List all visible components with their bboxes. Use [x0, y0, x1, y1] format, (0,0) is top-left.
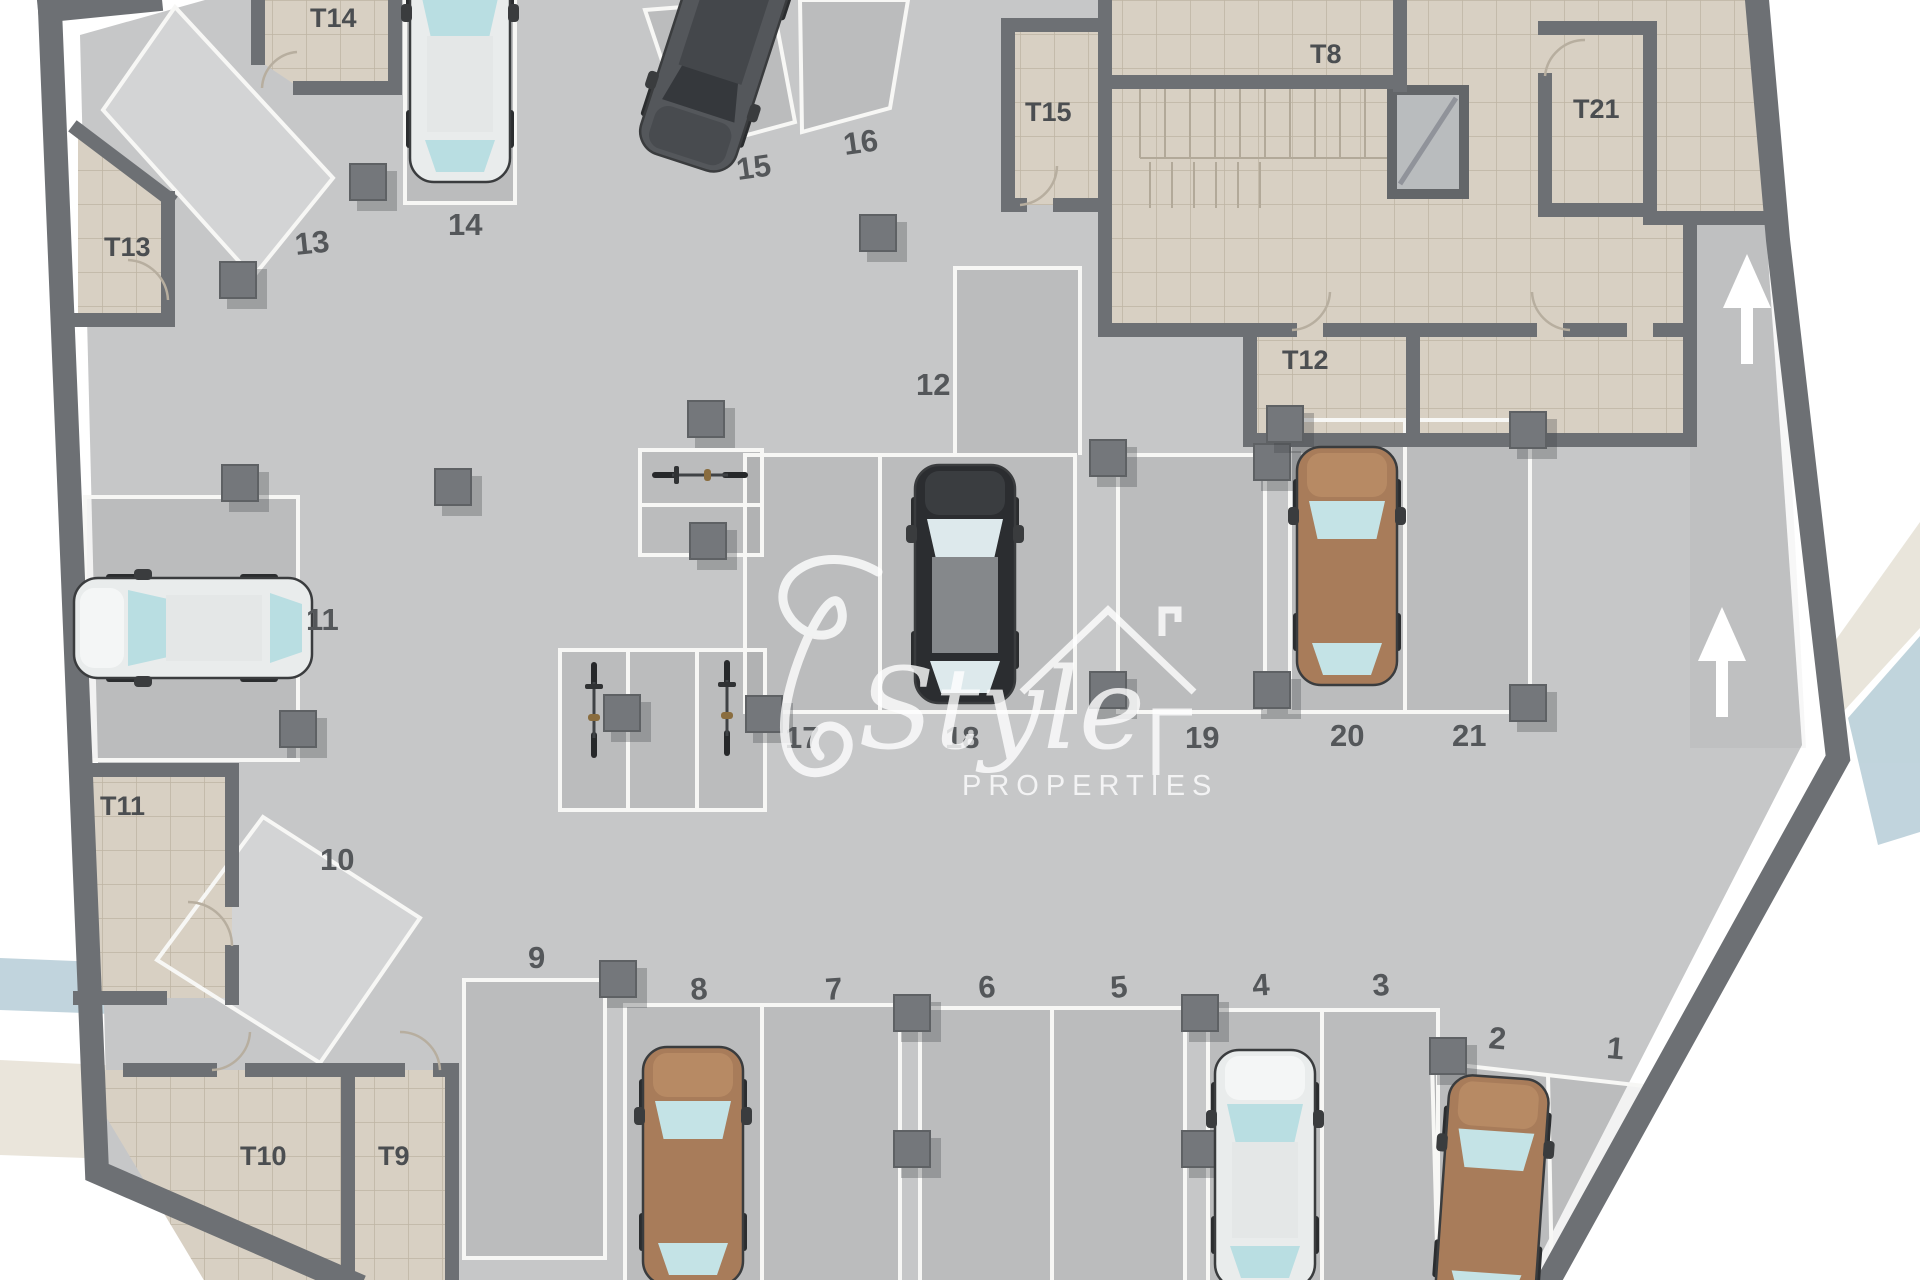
room-label-t12: T12 — [1282, 345, 1329, 375]
space-label-15: 15 — [734, 147, 773, 186]
space-label-10: 10 — [320, 842, 354, 877]
space-label-8: 8 — [689, 971, 709, 1007]
car-space-8 — [634, 1047, 752, 1280]
space-label-3: 3 — [1371, 967, 1391, 1003]
car-space-14 — [401, 0, 519, 182]
room-label-t8: T8 — [1310, 39, 1342, 69]
space-label-7: 7 — [824, 971, 844, 1007]
room-label-t13: T13 — [104, 232, 151, 262]
room-label-t9: T9 — [378, 1141, 410, 1171]
space-label-21: 21 — [1452, 718, 1486, 753]
room-label-t15: T15 — [1025, 97, 1072, 127]
space-label-16: 16 — [841, 122, 880, 161]
space-label-14: 14 — [448, 207, 483, 242]
car-space-11 — [74, 569, 312, 687]
space-label-5: 5 — [1109, 969, 1129, 1005]
watermark-caption: PROPERTIES — [962, 770, 1218, 802]
watermark-script: Style — [858, 645, 1145, 775]
room-label-t14: T14 — [310, 3, 357, 33]
floor-plan-page: 13 14 15 16 12 11 17 18 19 20 21 10 9 8 … — [0, 0, 1920, 1280]
car-space-4 — [1206, 1050, 1324, 1280]
room-label-t11: T11 — [100, 791, 145, 821]
space-label-13: 13 — [293, 224, 331, 262]
space-label-12: 12 — [916, 367, 950, 402]
space-label-9: 9 — [528, 940, 545, 975]
room-label-t21: T21 — [1573, 94, 1620, 124]
space-label-20: 20 — [1330, 718, 1364, 753]
space-label-4: 4 — [1251, 967, 1271, 1003]
space-label-2: 2 — [1487, 1020, 1507, 1056]
space-label-19: 19 — [1185, 720, 1219, 755]
space-label-1: 1 — [1605, 1030, 1625, 1066]
space-label-6: 6 — [977, 969, 997, 1005]
floor-plan-drawing: 13 14 15 16 12 11 17 18 19 20 21 10 9 8 … — [0, 0, 1920, 1280]
space-label-11: 11 — [306, 602, 339, 637]
car-space-20 — [1288, 447, 1406, 685]
room-label-t10: T10 — [240, 1141, 287, 1171]
elevator — [1392, 90, 1464, 194]
